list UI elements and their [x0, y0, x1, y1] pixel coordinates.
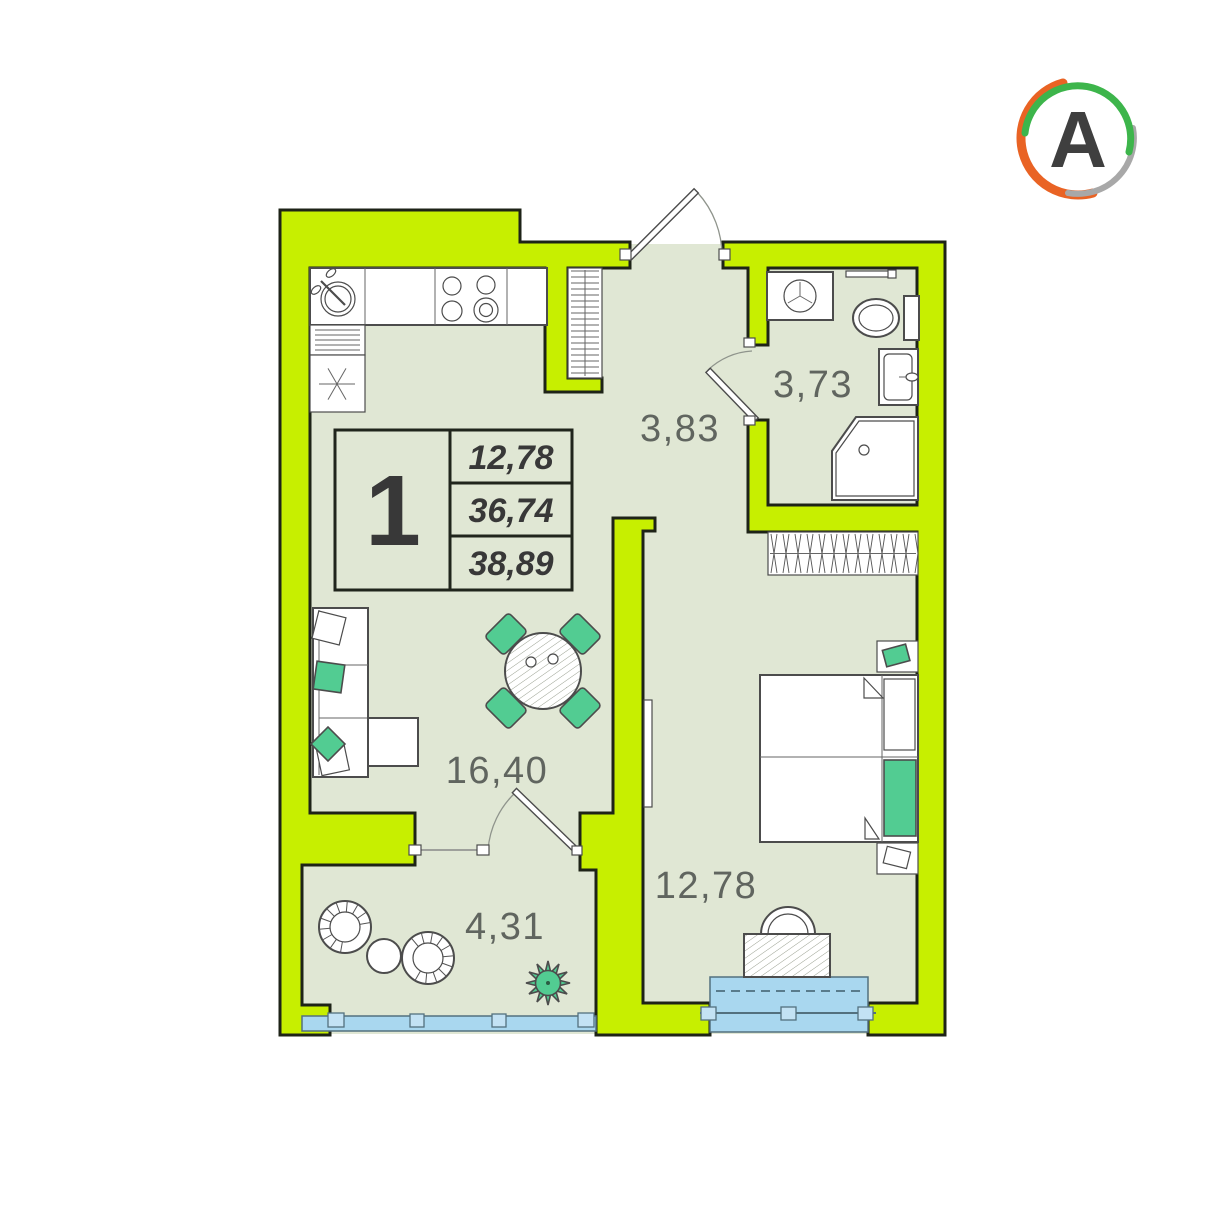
living-area-label: 16,40: [446, 750, 549, 792]
fridge-icon: [310, 355, 365, 412]
total-area-value: 38,89: [468, 545, 553, 583]
logo-letter: A: [1049, 95, 1107, 184]
nightstand: [877, 641, 918, 672]
bathroom-shelf: [846, 270, 896, 278]
dining-table: [505, 633, 581, 709]
washing-machine-icon: [767, 272, 833, 320]
bedroom-window: [700, 977, 876, 1032]
balcony-glazing: [302, 1013, 596, 1031]
sofa-pillow-green: [313, 661, 345, 693]
toilet-icon: [853, 296, 919, 340]
rooms-count: 1: [365, 455, 421, 567]
bathroom-area-label: 3,73: [773, 364, 853, 406]
logo: A: [1021, 83, 1134, 195]
sofa-pillow: [312, 611, 346, 645]
bedroom-area-label: 12,78: [655, 865, 758, 907]
balcony-table: [367, 939, 401, 973]
balcony-area-label: 4,31: [465, 906, 545, 948]
bed-pillow: [884, 679, 915, 750]
bed-blanket: [884, 760, 916, 836]
bathroom-sink-icon: [879, 349, 918, 405]
wicker-chair: [402, 932, 454, 984]
wardrobe: [768, 532, 918, 575]
floor-plan: 3,83 3,73 16,40 12,78 4,31 1 12,78 36,74…: [0, 0, 1230, 1230]
floor-plan-page: 3,83 3,73 16,40 12,78 4,31 1 12,78 36,74…: [0, 0, 1230, 1230]
nightstand: [877, 843, 918, 874]
kitchen-counter: [310, 268, 547, 325]
apartment-area-value: 36,74: [468, 492, 553, 530]
bed: [760, 675, 918, 842]
living-area-value: 12,78: [468, 439, 553, 477]
wicker-chair: [319, 901, 371, 953]
hallway-area-label: 3,83: [640, 408, 720, 450]
bedroom-sliding-door: [644, 700, 652, 807]
kitchen-drainer: [310, 325, 365, 355]
hallway-closet: [568, 268, 602, 378]
